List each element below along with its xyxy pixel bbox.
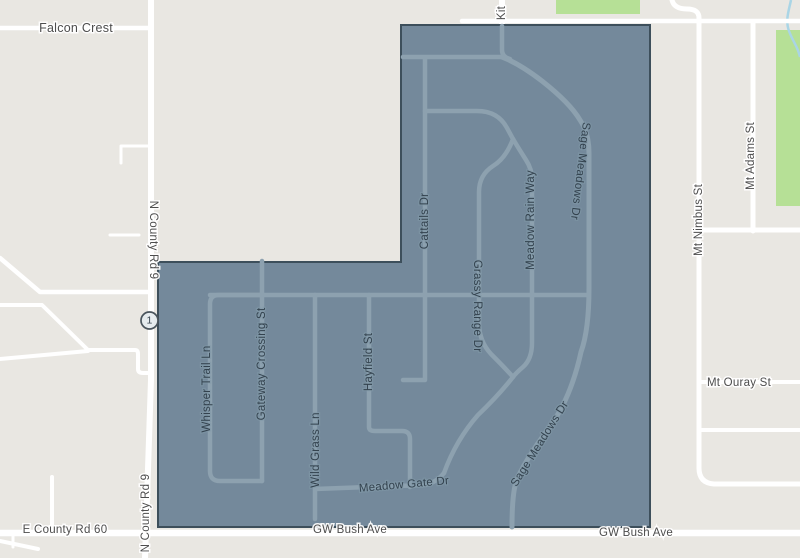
park-area-small: [556, 0, 640, 14]
street-label-cattails-dr: Cattails Dr: [419, 193, 431, 249]
street-label-n-county-rd-9-bottom: N County Rd 9: [140, 474, 152, 553]
street-label-hayfield-st: Hayfield St: [363, 332, 375, 391]
street-label-falcon-crest: Falcon Crest: [39, 21, 113, 35]
street-label-wild-grass-ln: Wild Grass Ln: [310, 412, 322, 487]
street-label-gateway-crossing-st: Gateway Crossing St: [256, 307, 268, 420]
street-label-mt-nimbus-st: Mt Nimbus St: [693, 183, 705, 256]
street-label-e-county-rd-60: E County Rd 60: [23, 524, 108, 536]
route-marker-label: 1: [146, 315, 152, 327]
street-label-whisper-trail-ln: Whisper Trail Ln: [201, 345, 213, 432]
street-label-kit: Kit: [496, 5, 508, 20]
street-label-gw-bush-ave-right: GW Bush Ave: [599, 527, 673, 539]
street-label-mt-adams-st: Mt Adams St: [745, 121, 757, 189]
street-label-grassy-range-dr: Grassy Range Dr: [471, 260, 483, 353]
street-label-mt-ouray-st: Mt Ouray St: [707, 377, 772, 389]
street-label-gw-bush-ave-center: GW Bush Ave: [313, 524, 387, 536]
map-svg: 1 Falcon Crest N County Rd 9 N County Rd…: [0, 0, 800, 558]
street-label-n-county-rd-9-top: N County Rd 9: [147, 201, 159, 280]
map-canvas[interactable]: 1 Falcon Crest N County Rd 9 N County Rd…: [0, 0, 800, 558]
route-marker-1: 1: [141, 312, 158, 329]
street-label-meadow-rain-way: Meadow Rain Way: [525, 170, 537, 270]
park-area-large: [776, 30, 800, 206]
